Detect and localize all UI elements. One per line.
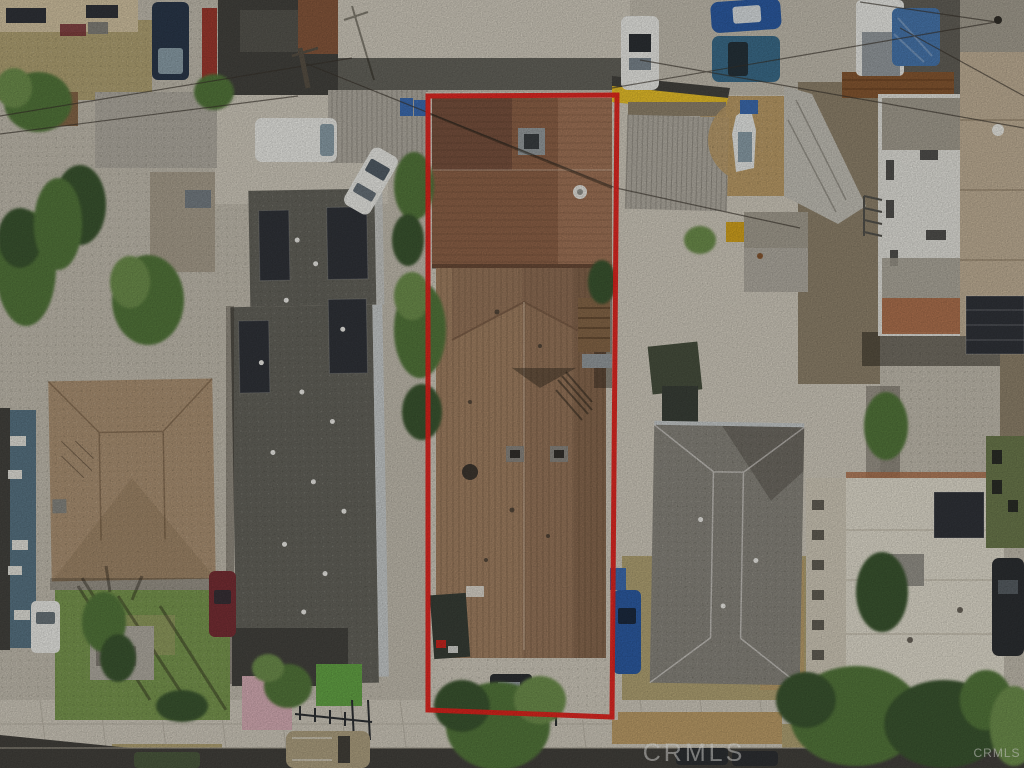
- aerial-photo: CRMLS CRMLS: [0, 0, 1024, 768]
- photo-grain: [0, 0, 1024, 768]
